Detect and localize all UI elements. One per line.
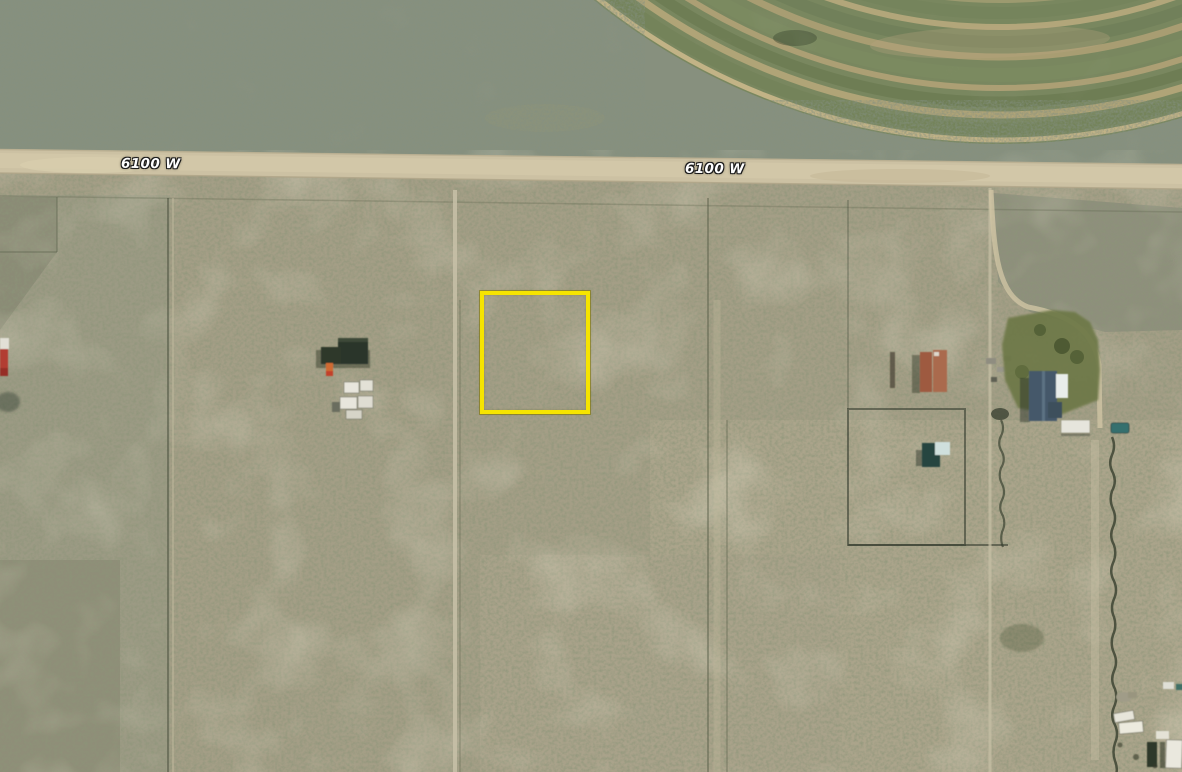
scrub-texture [0, 0, 1182, 772]
dark-bush [991, 408, 1009, 420]
road-label-6100w-center: 6100 W [685, 161, 745, 178]
terrain-imagery [0, 0, 1182, 772]
scrub-clump [1000, 624, 1044, 652]
parcel-highlight [480, 291, 590, 414]
satellite-map[interactable]: 6100 W 6100 W [0, 0, 1182, 772]
road-label-6100w-left: 6100 W [121, 156, 181, 173]
